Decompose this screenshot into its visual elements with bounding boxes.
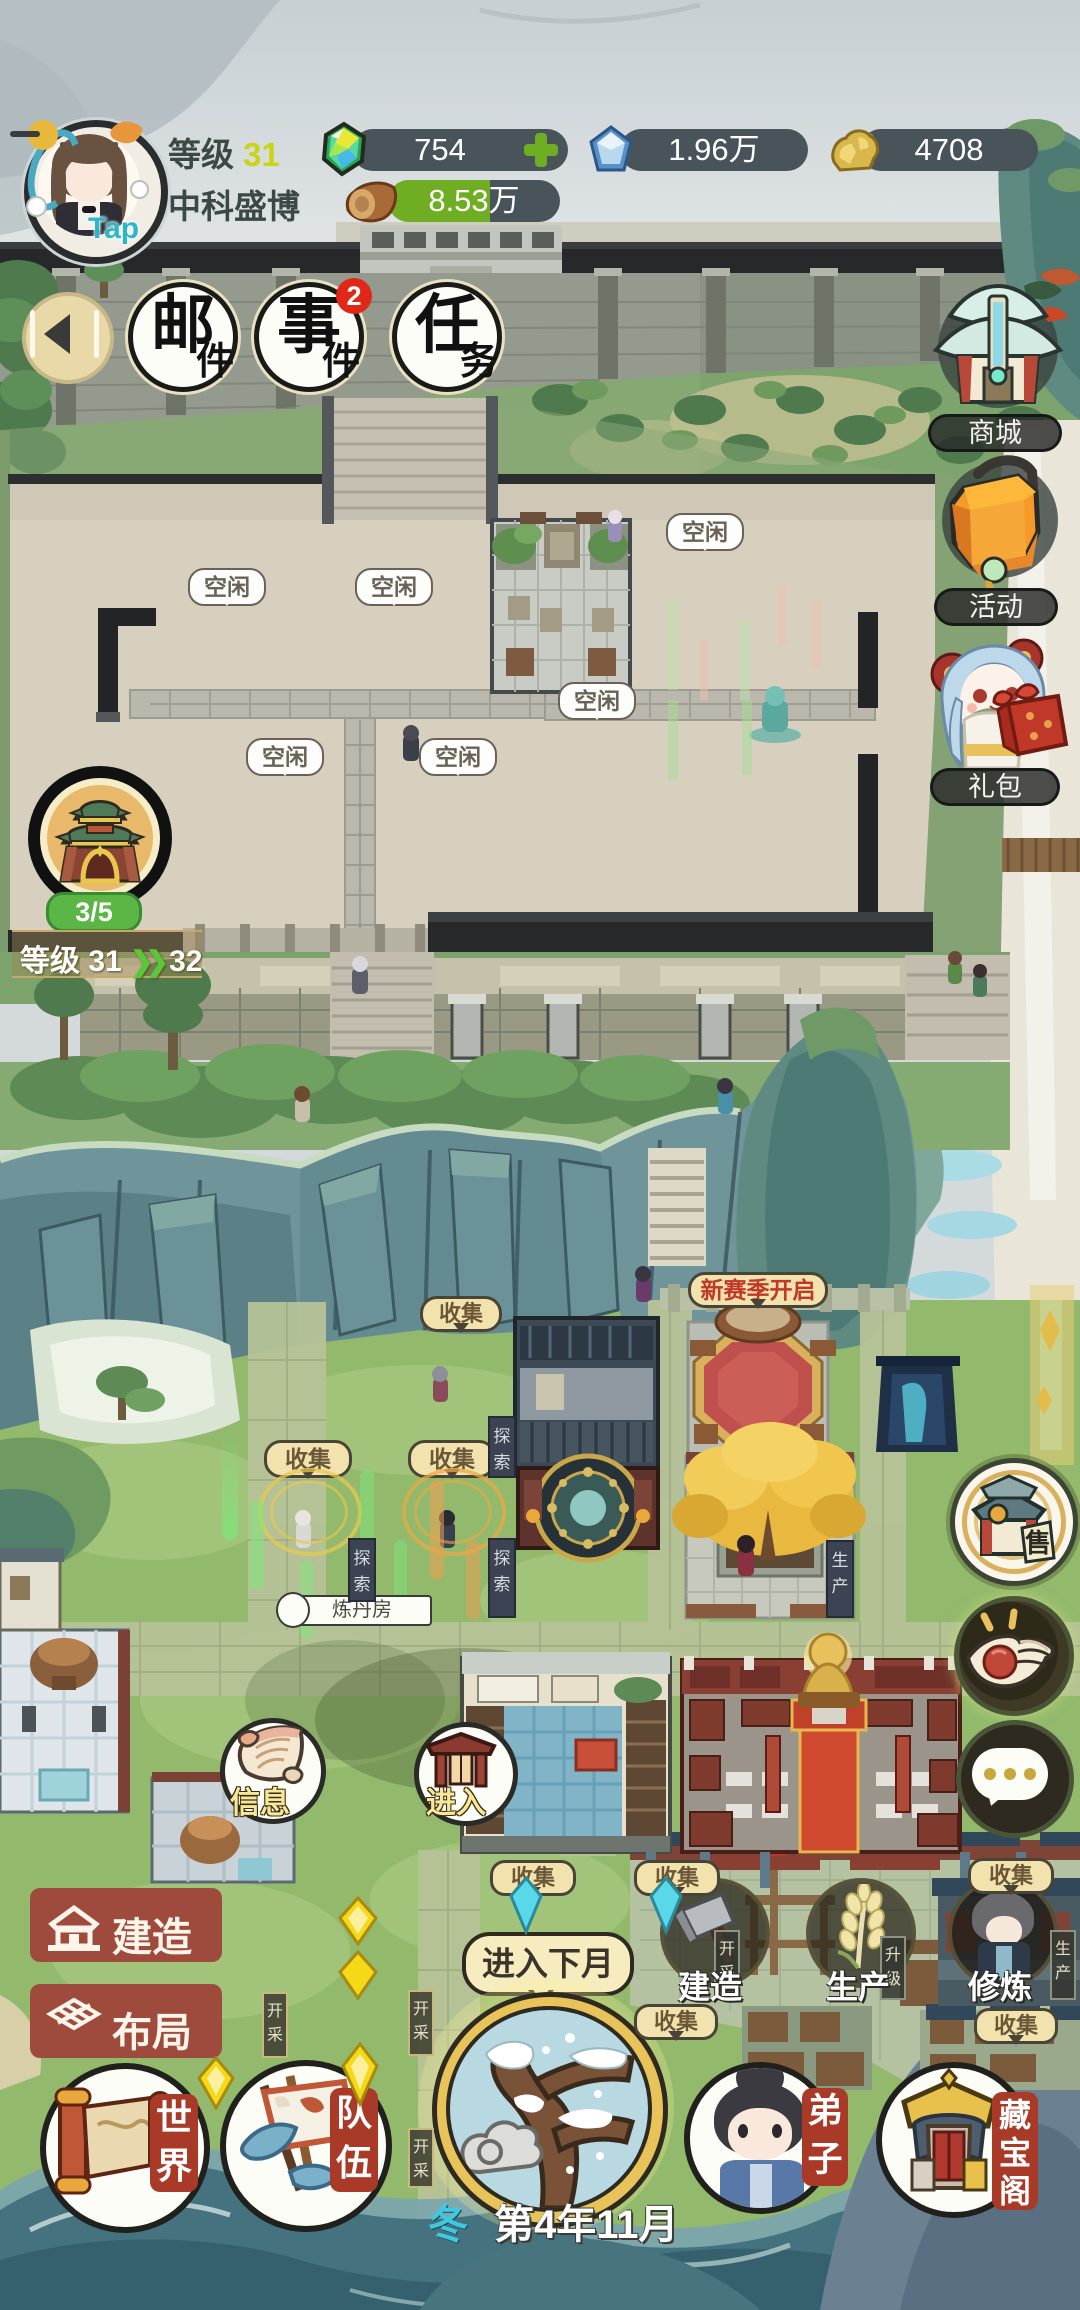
svg-text:售: 售 <box>1025 1528 1051 1558</box>
